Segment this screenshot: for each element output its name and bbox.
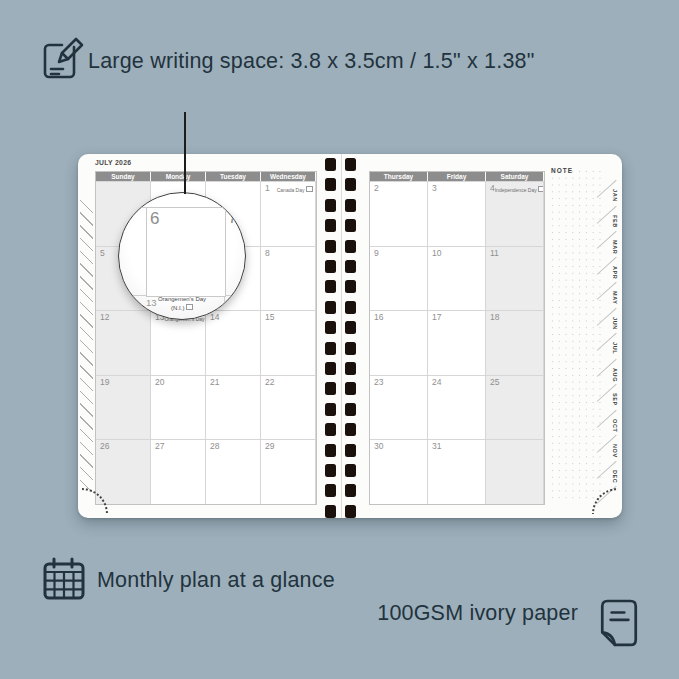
date-number: 19 bbox=[100, 378, 109, 387]
date-number: 20 bbox=[155, 378, 164, 387]
binding-hole bbox=[345, 199, 356, 212]
perforation-arc bbox=[592, 488, 618, 514]
month-tab-jul: JUL bbox=[599, 337, 621, 363]
binding-hole bbox=[325, 199, 336, 212]
notepad-pencil-icon bbox=[40, 34, 86, 86]
calendar-cell-29: 29 bbox=[261, 439, 316, 504]
binding-hole bbox=[325, 158, 336, 171]
date-number: 24 bbox=[432, 378, 441, 387]
date-number: 3 bbox=[432, 184, 437, 193]
month-tab-label: JUN bbox=[612, 317, 618, 330]
date-number: 18 bbox=[490, 313, 499, 322]
date-number: 26 bbox=[100, 442, 109, 451]
binding-hole bbox=[325, 423, 336, 436]
date-number: 28 bbox=[210, 442, 219, 451]
binding-hole bbox=[345, 382, 356, 395]
month-tab-apr: APR bbox=[599, 261, 621, 287]
calendar-cell-28: 28 bbox=[206, 439, 261, 504]
binding-hole bbox=[345, 321, 356, 334]
corner-perforation-right bbox=[588, 484, 618, 514]
binding-hole bbox=[345, 403, 356, 416]
calendar-cell-24: 24 bbox=[428, 375, 486, 440]
date-number: 8 bbox=[265, 249, 270, 258]
calendar-cell-22: 22 bbox=[261, 375, 316, 440]
calendar-cell-15: 15 bbox=[261, 310, 316, 375]
callout-pointer-line bbox=[184, 112, 186, 194]
month-tab-label: MAR bbox=[612, 240, 618, 254]
calendar-cell-10: 10 bbox=[428, 246, 486, 311]
page-seam bbox=[341, 154, 342, 518]
feature-text-paper: 100GSM ivory paper bbox=[377, 601, 578, 626]
month-tab-label: APR bbox=[612, 266, 618, 279]
paper-sheet-icon bbox=[596, 596, 642, 652]
binding-hole bbox=[325, 464, 336, 477]
holiday-label: Independence Day bbox=[495, 184, 544, 193]
month-tab-label: MAY bbox=[612, 291, 618, 305]
calendar-cell-17: 17 bbox=[428, 310, 486, 375]
month-tab-label: JAN bbox=[612, 189, 618, 202]
binding-hole bbox=[325, 382, 336, 395]
binding-hole bbox=[325, 240, 336, 253]
date-number: 12 bbox=[100, 313, 109, 322]
date-number: 9 bbox=[374, 249, 379, 258]
note-dot-grid bbox=[549, 168, 603, 504]
perforation-arc bbox=[82, 488, 108, 514]
binding-hole bbox=[325, 178, 336, 191]
date-number: 22 bbox=[265, 378, 274, 387]
flag-icon bbox=[186, 304, 193, 310]
day-header-sunday: Sunday bbox=[96, 172, 151, 181]
binding-hole bbox=[325, 260, 336, 273]
date-number: 21 bbox=[210, 378, 219, 387]
calendar-cell-21: 21 bbox=[206, 375, 261, 440]
month-tab-nov: NOV bbox=[599, 439, 621, 465]
month-tab-label: AUG bbox=[612, 368, 618, 382]
date-number: 31 bbox=[432, 442, 441, 451]
calendar-cell-14: 14 bbox=[206, 310, 261, 375]
calendar-cell-empty bbox=[486, 439, 544, 504]
month-title: JULY 2026 bbox=[95, 159, 131, 166]
spiral-binding-left bbox=[325, 154, 336, 518]
binding-hole bbox=[345, 280, 356, 293]
month-tab-label: NOV bbox=[612, 444, 618, 458]
holiday-label: Canada Day bbox=[277, 184, 313, 193]
binding-hole bbox=[325, 219, 336, 232]
day-header-monday: Monday bbox=[151, 172, 206, 181]
product-feature-image: { "colors": { "background": "#9DAFBA", "… bbox=[0, 0, 679, 679]
binding-hole bbox=[325, 403, 336, 416]
calendar-cell-2: 2 bbox=[370, 181, 428, 246]
calendar-cell-8: 8 bbox=[261, 246, 316, 311]
month-tab-aug: AUG bbox=[599, 363, 621, 389]
day-header-friday: Friday bbox=[428, 172, 486, 181]
binding-hole bbox=[345, 240, 356, 253]
binding-hole bbox=[345, 362, 356, 375]
month-tab-label: JUL bbox=[612, 342, 618, 354]
spiral-binding-right bbox=[345, 154, 356, 518]
binding-hole bbox=[345, 178, 356, 191]
calendar-cell-19: 19 bbox=[96, 375, 151, 440]
binding-hole bbox=[345, 301, 356, 314]
date-number: 16 bbox=[374, 313, 383, 322]
day-header-saturday: Saturday bbox=[486, 172, 544, 181]
binding-hole bbox=[325, 301, 336, 314]
month-tab-label: FEB bbox=[612, 215, 618, 228]
calendar-cell-9: 9 bbox=[370, 246, 428, 311]
binding-hole bbox=[345, 158, 356, 171]
magnified-date: 6 bbox=[150, 209, 159, 229]
day-header-tuesday: Tuesday bbox=[206, 172, 261, 181]
calendar-cell-18: 18 bbox=[486, 310, 544, 375]
month-tab-label: SEP bbox=[612, 393, 618, 406]
date-number: 30 bbox=[374, 442, 383, 451]
binding-hole bbox=[325, 321, 336, 334]
calendar-cell-31: 31 bbox=[428, 439, 486, 504]
flag-icon bbox=[306, 186, 313, 192]
date-number: 1 bbox=[265, 184, 270, 193]
month-tab-jun: JUN bbox=[599, 312, 621, 338]
flag-icon bbox=[538, 186, 544, 192]
month-tab-label: OCT bbox=[612, 419, 618, 432]
binding-hole bbox=[345, 260, 356, 273]
binding-hole bbox=[345, 423, 356, 436]
day-header-wednesday: Wednesday bbox=[261, 172, 316, 181]
month-tab-index: JANFEBMARAPRMAYJUNJULAUGSEPOCTNOVDEC bbox=[599, 184, 621, 490]
day-header-thursday: Thursday bbox=[370, 172, 428, 181]
calendar-cell-27: 27 bbox=[151, 439, 206, 504]
binding-hole bbox=[345, 342, 356, 355]
calendar-cell-1: 1Canada Day bbox=[261, 181, 316, 246]
date-number: 5 bbox=[100, 249, 105, 258]
date-number: 14 bbox=[210, 313, 219, 322]
note-label: NOTE bbox=[551, 167, 573, 174]
month-tab-feb: FEB bbox=[599, 210, 621, 236]
calendar-grid-right: ThursdayFridaySaturday234Independence Da… bbox=[369, 171, 545, 505]
binding-hole bbox=[345, 505, 356, 518]
calendar-cell-30: 30 bbox=[370, 439, 428, 504]
binding-hole bbox=[345, 219, 356, 232]
binding-hole bbox=[345, 464, 356, 477]
calendar-cell-25: 25 bbox=[486, 375, 544, 440]
binding-hole bbox=[345, 484, 356, 497]
calendar-cell-23: 23 bbox=[370, 375, 428, 440]
binding-hole bbox=[325, 362, 336, 375]
calendar-cell-12: 12 bbox=[96, 310, 151, 375]
month-tab-label: DEC bbox=[612, 470, 618, 483]
month-tab-may: MAY bbox=[599, 286, 621, 312]
month-tab-mar: MAR bbox=[599, 235, 621, 261]
month-tab-sep: SEP bbox=[599, 388, 621, 414]
calendar-cell-4: 4Independence Day bbox=[486, 181, 544, 246]
date-number: 10 bbox=[432, 249, 441, 258]
calendar-cell-11: 11 bbox=[486, 246, 544, 311]
date-number: 25 bbox=[490, 378, 499, 387]
date-number: 27 bbox=[155, 442, 164, 451]
binding-hole bbox=[325, 505, 336, 518]
binding-hole bbox=[345, 444, 356, 457]
page-edge-hatch bbox=[80, 200, 93, 492]
calendar-cell-16: 16 bbox=[370, 310, 428, 375]
feature-text-writing-space: Large writing space: 3.8 x 3.5cm / 1.5" … bbox=[88, 49, 535, 74]
date-number: 29 bbox=[265, 442, 274, 451]
calendar-cell-20: 20 bbox=[151, 375, 206, 440]
binding-hole bbox=[325, 484, 336, 497]
calendar-grid-icon bbox=[42, 556, 86, 602]
date-number: 17 bbox=[432, 313, 441, 322]
magnifier-circle: 6 7 13 Orangemen's Day (N.I.) bbox=[118, 192, 246, 320]
binding-hole bbox=[325, 342, 336, 355]
binding-hole bbox=[325, 444, 336, 457]
date-number: 11 bbox=[490, 249, 499, 258]
date-number: 15 bbox=[265, 313, 274, 322]
binding-hole bbox=[325, 280, 336, 293]
feature-text-monthly-plan: Monthly plan at a glance bbox=[97, 568, 335, 593]
calendar-cell-3: 3 bbox=[428, 181, 486, 246]
date-number: 23 bbox=[374, 378, 383, 387]
date-number: 2 bbox=[374, 184, 379, 193]
month-tab-jan: JAN bbox=[599, 184, 621, 210]
month-tab-oct: OCT bbox=[599, 414, 621, 440]
corner-perforation-left bbox=[82, 484, 112, 514]
